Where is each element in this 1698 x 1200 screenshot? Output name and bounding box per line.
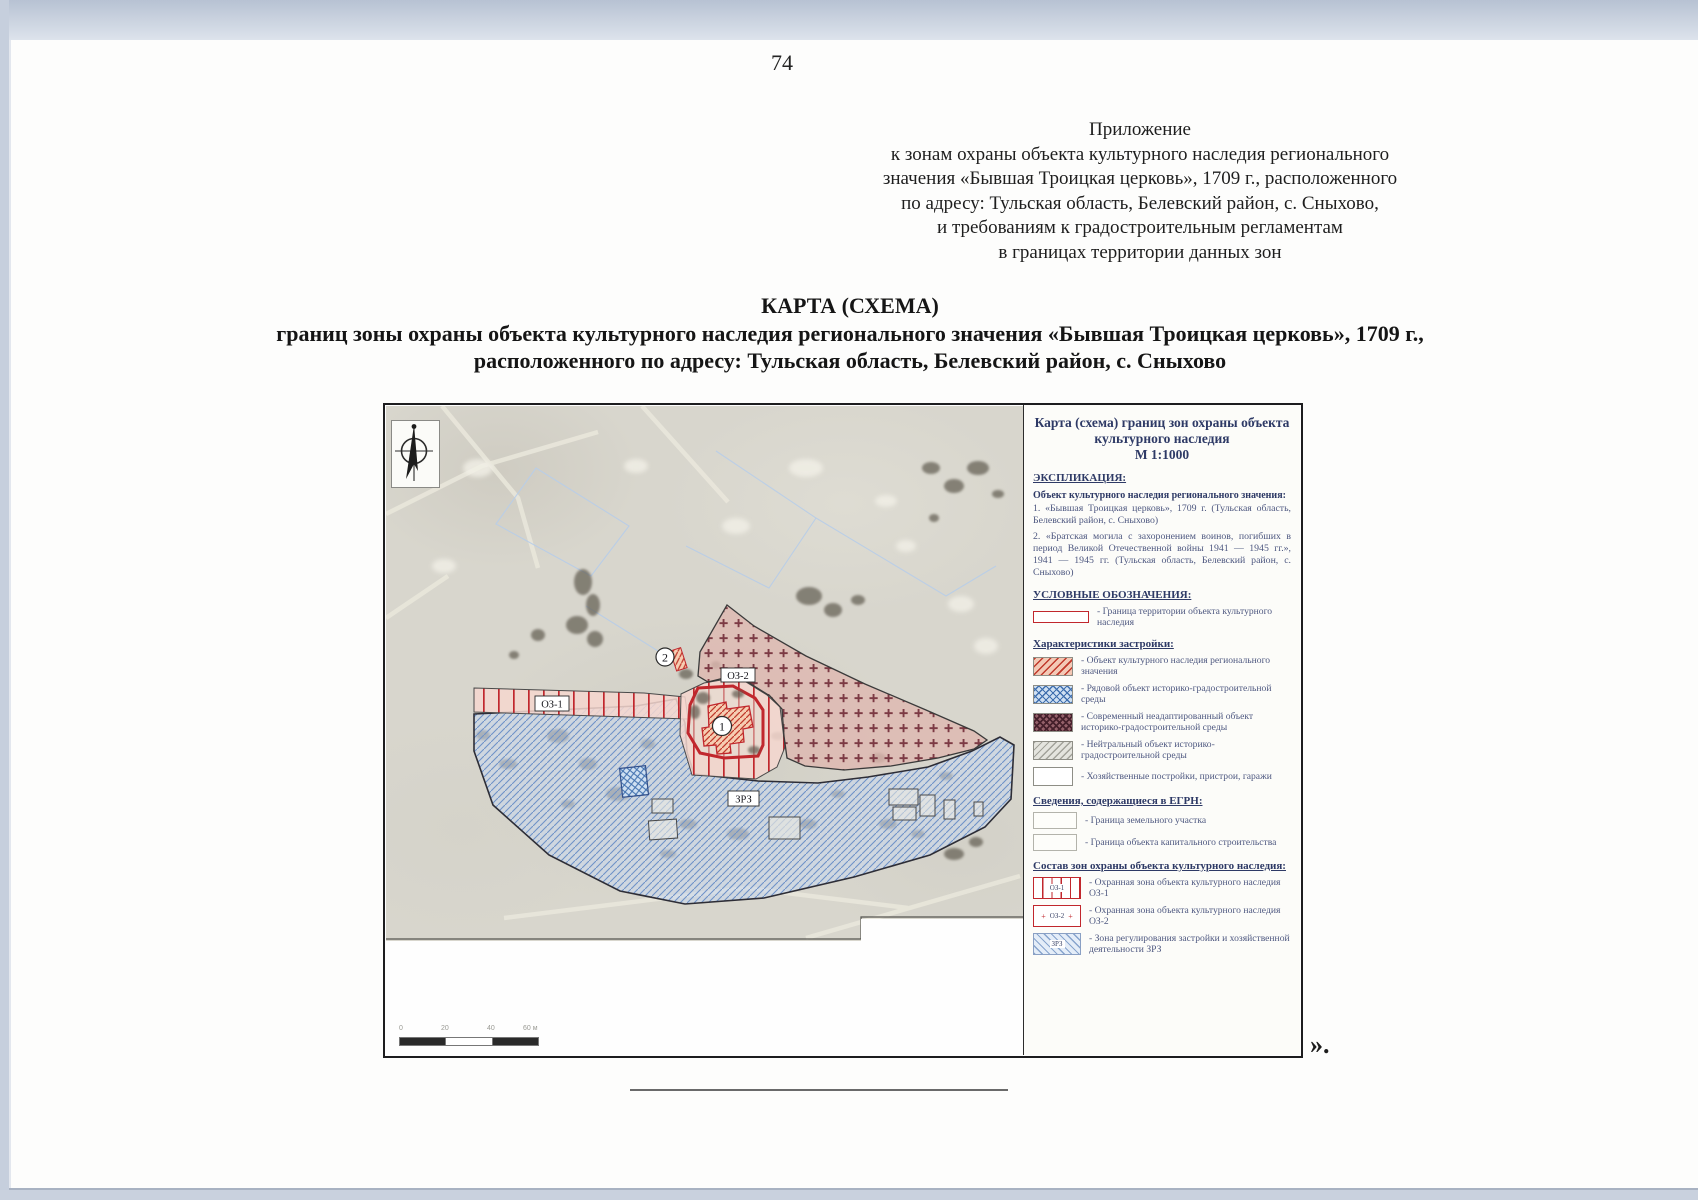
heritage-object-item: 1. «Бывшая Троицкая церковь», 1709 г. (Т… <box>1033 503 1291 528</box>
annex-line: в границах территории данных зон <box>820 241 1460 266</box>
closing-quote-mark: ». <box>1310 1030 1330 1060</box>
title-line: КАРТА (СХЕМА) <box>60 292 1640 320</box>
ordinary-historic-building <box>620 766 649 798</box>
scan-edge-top <box>0 0 1698 40</box>
scale-tick: 40 <box>487 1025 495 1032</box>
title-line: границ зоны охраны объекта культурного н… <box>60 320 1640 348</box>
parcel-boundary-swatch <box>1033 812 1077 829</box>
scale-tick: 60 м <box>523 1025 538 1032</box>
legend-row-label: - Зона регулирования застройки и хозяйст… <box>1089 933 1291 956</box>
dark-crosshatch-swatch <box>1033 713 1073 732</box>
legend-row: - Хозяйственные постройки, пристрои, гар… <box>1033 767 1291 786</box>
scale-tick: 0 <box>399 1025 403 1032</box>
legend-row: ОЗ-1 - Охранная зона объекта культурного… <box>1033 877 1291 900</box>
plus-mark: + <box>1066 912 1075 921</box>
scale-bar: 0 20 40 60 м <box>399 1025 539 1051</box>
legend-title-line: Карта (схема) границ зон охраны объекта <box>1033 415 1291 431</box>
label-zrz: ЗРЗ <box>735 795 752 806</box>
scan-edge-left <box>0 0 9 1200</box>
document-title: КАРТА (СХЕМА) границ зоны охраны объекта… <box>60 292 1640 375</box>
legend-row-label: - Охранная зона объекта культурного насл… <box>1089 905 1291 928</box>
legend-row-label: - Охранная зона объекта культурного насл… <box>1089 877 1291 900</box>
heritage-boundary-swatch <box>1033 611 1089 623</box>
symbols-header: УСЛОВНЫЕ ОБОЗНАЧЕНИЯ: <box>1033 589 1291 601</box>
zone-code: ОЗ-2 <box>1048 912 1066 920</box>
annex-line: Приложение <box>820 118 1460 143</box>
legend-row: +ОЗ-2+ - Охранная зона объекта культурно… <box>1033 905 1291 928</box>
legend-row: - Нейтральный объект историко-градострои… <box>1033 739 1291 762</box>
heritage-object-item: 2. «Братская могила с захоронением воино… <box>1033 531 1291 580</box>
annex-line: значения «Бывшая Троицкая церковь», 1709… <box>820 167 1460 192</box>
empty-swatch <box>1033 767 1073 786</box>
map-figure: ОЗ-1 ОЗ-2 ЗРЗ 1 2 <box>383 403 1303 1058</box>
legend-row: - Объект культурного наследия региональн… <box>1033 655 1291 678</box>
legend-row-label: - Граница земельного участка <box>1085 815 1291 827</box>
north-arrow-icon <box>392 421 437 485</box>
zones-header: Состав зон охраны объекта культурного на… <box>1033 860 1291 872</box>
zone-code: ЗРЗ <box>1050 940 1065 948</box>
photo-bottom-edge <box>386 917 1023 939</box>
scale-bar-segments <box>399 1037 539 1046</box>
legend-row: - Рядовой объект историко-градостроитель… <box>1033 683 1291 706</box>
plus-mark: + <box>1039 912 1048 921</box>
legend-panel: Карта (схема) границ зон охраны объекта … <box>1023 405 1300 1055</box>
scanned-document-page: 74 Приложение к зонам охраны объекта кул… <box>0 0 1698 1200</box>
page-number: 74 <box>722 50 842 76</box>
scale-tick: 20 <box>441 1025 449 1032</box>
explication-header: ЭКСПЛИКАЦИЯ: <box>1033 472 1291 484</box>
red-hatch-swatch <box>1033 657 1073 676</box>
legend-row: - Граница объекта капитального строитель… <box>1033 834 1291 851</box>
legend-row: - Граница территории объекта культурного… <box>1033 606 1291 629</box>
annex-line: и требованиям к градостроительным реглам… <box>820 216 1460 241</box>
title-line: расположенного по адресу: Тульская облас… <box>60 347 1640 375</box>
north-arrow-box <box>391 420 440 488</box>
annex-line: к зонам охраны объекта культурного насле… <box>820 143 1460 168</box>
zrz-zone-swatch: ЗРЗ <box>1033 933 1081 955</box>
scan-edge-bottom <box>0 1190 1698 1200</box>
legend-title: Карта (схема) границ зон охраны объекта … <box>1033 415 1291 463</box>
buildings-header: Характеристики застройки: <box>1033 638 1291 650</box>
capital-object-swatch <box>1033 834 1077 851</box>
legend-title-line: культурного наследия <box>1033 431 1291 447</box>
legend-row-label: - Рядовой объект историко-градостроитель… <box>1081 683 1291 706</box>
legend-row: - Граница земельного участка <box>1033 812 1291 829</box>
legend-row-label: - Хозяйственные постройки, пристрои, гар… <box>1081 771 1291 783</box>
footnote-rule <box>630 1089 1008 1091</box>
legend-scale-note: М 1:1000 <box>1033 447 1291 463</box>
annex-note: Приложение к зонам охраны объекта культу… <box>820 118 1460 265</box>
zone-code: ОЗ-1 <box>1048 884 1066 892</box>
annex-line: по адресу: Тульская область, Белевский р… <box>820 192 1460 217</box>
aerial-photo: ОЗ-1 ОЗ-2 ЗРЗ 1 2 <box>386 406 1023 947</box>
map-zones-overlay: ОЗ-1 ОЗ-2 ЗРЗ 1 2 <box>386 406 1023 947</box>
egrn-header: Сведения, содержащиеся в ЕГРН: <box>1033 795 1291 807</box>
point-marker-1: 1 <box>719 720 725 734</box>
oz2-zone-swatch: +ОЗ-2+ <box>1033 905 1081 927</box>
label-oz2: ОЗ-2 <box>727 671 749 682</box>
heritage-object-header: Объект культурного наследия региональног… <box>1033 490 1291 501</box>
legend-row: - Современный неадаптированный объект ис… <box>1033 711 1291 734</box>
legend-row: ЗРЗ - Зона регулирования застройки и хоз… <box>1033 933 1291 956</box>
legend-row-label: - Объект культурного наследия региональн… <box>1081 655 1291 678</box>
point-marker-2: 2 <box>662 651 668 665</box>
oz1-zone-swatch: ОЗ-1 <box>1033 877 1081 899</box>
legend-row-label: - Современный неадаптированный объект ис… <box>1081 711 1291 734</box>
legend-row-label: - Граница территории объекта культурного… <box>1097 606 1291 629</box>
blue-crosshatch-swatch <box>1033 685 1073 704</box>
gray-hatch-swatch <box>1033 741 1073 760</box>
legend-row-label: - Нейтральный объект историко-градострои… <box>1081 739 1291 762</box>
legend-row-label: - Граница объекта капитального строитель… <box>1085 837 1291 849</box>
label-oz1: ОЗ-1 <box>541 700 563 711</box>
